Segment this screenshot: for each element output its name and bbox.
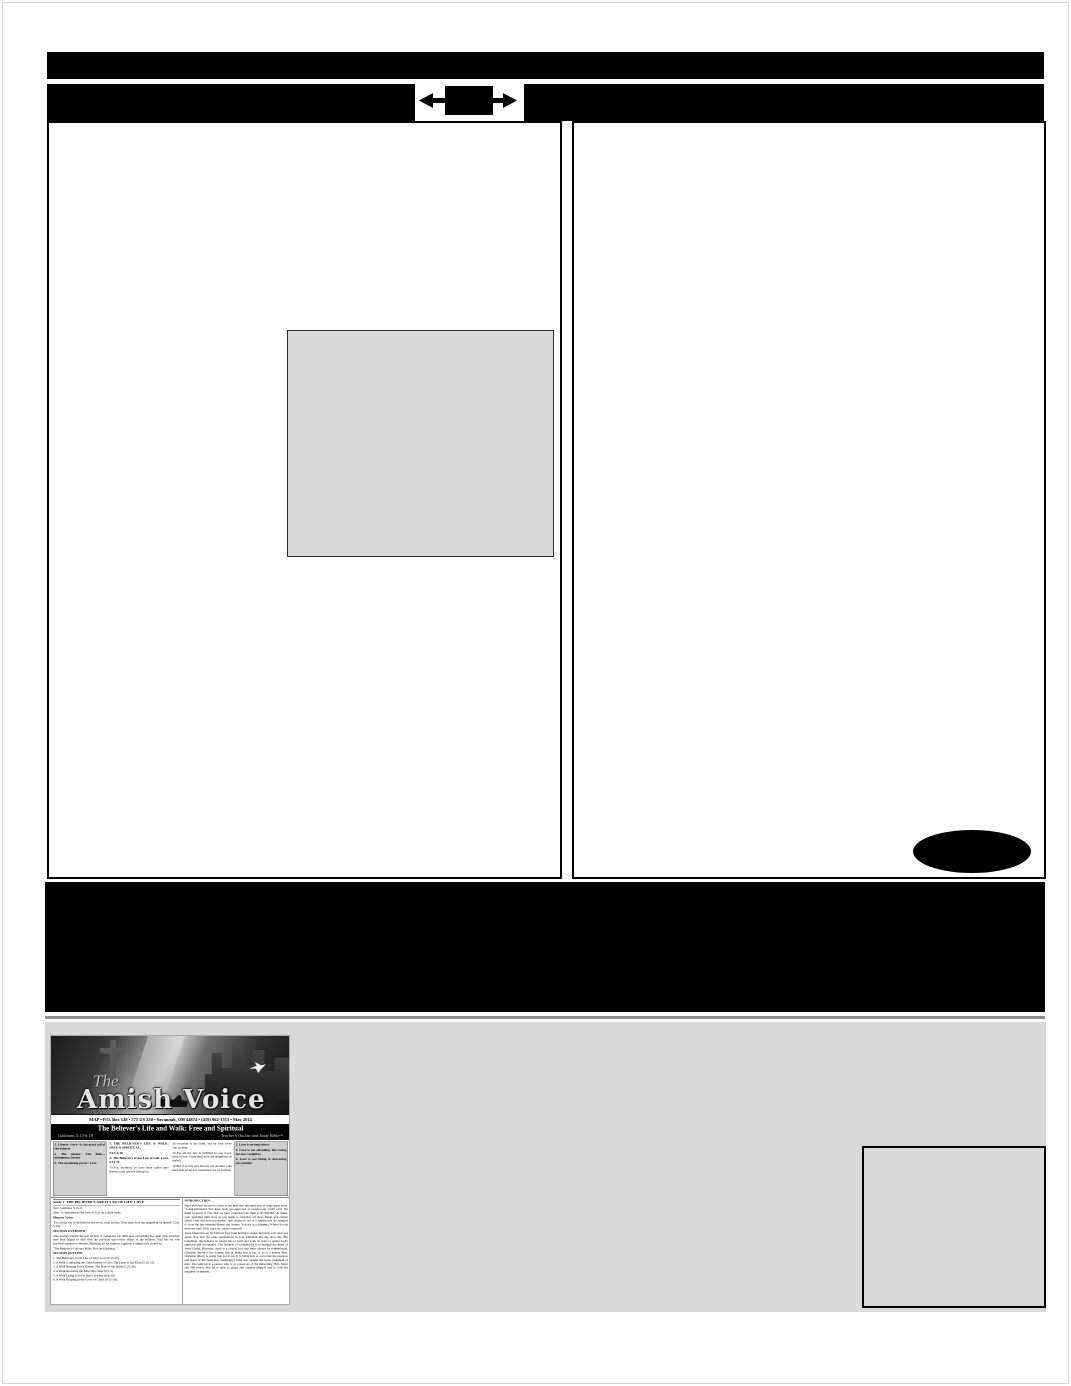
outline-item: a. The danger: The flesh—indulgence, lic…	[55, 1152, 106, 1160]
document-page: The Amish Voice MAP • P.O. Box 128 • 575…	[0, 0, 1071, 1386]
introduction-paragraph: Have you ever received a letter in the m…	[184, 1204, 288, 1231]
footer-redaction-band	[45, 882, 1045, 1012]
section-heading: 5. THE BELIEVER'S LIFE & WALK: FREE & SP…	[109, 1142, 169, 1150]
newsletter-page: The Amish Voice MAP • P.O. Box 128 • 575…	[51, 1036, 290, 1305]
outline-list-item: 4. A Walk Restoring the Man Who Slips (6…	[53, 1269, 180, 1273]
outline-item: 1. Liberty—love—is the great call of the…	[55, 1143, 106, 1151]
section-outline-list: 1. The Believer's Great Law of Life: Lov…	[53, 1256, 180, 1282]
outline-item: 2. Love is serving others	[236, 1143, 287, 1147]
outline-list-item: 5. A Walk Doing Good to One's Teacher (6…	[53, 1274, 180, 1278]
study-aim: Aim: To demonstrate the love of God on a…	[53, 1211, 180, 1215]
newsletter-source: – Teacher's Outline and Study Bible™	[218, 1133, 283, 1138]
newsletter-body: Study 1: THE BELIEVER'S GREAT LAW OF LIF…	[51, 1198, 290, 1304]
header-bar-right	[524, 84, 1044, 121]
outline-list-item: 2. A Walk Combating the Great Enemy of L…	[53, 1261, 180, 1265]
newsletter-title: The Believer's Life and Walk: Free and S…	[51, 1125, 290, 1133]
newsletter-title-band: The Believer's Life and Walk: Free and S…	[51, 1125, 290, 1140]
outline-list-item: 3. A Walk Bearing God's Nature: The Frui…	[53, 1265, 180, 1269]
masthead-info-line: MAP • P.O. Box 128 • 575 US 250 • Savann…	[51, 1114, 290, 1125]
section-outline-label: SECTION OUTLINE:	[53, 1252, 180, 1256]
divider-rule	[45, 1016, 1045, 1019]
placeholder-image-box	[287, 330, 554, 557]
horizontal-resize-handle[interactable]	[415, 84, 521, 121]
outline-item: 4. Love is not biting & devouring one an…	[236, 1158, 287, 1166]
section-overview-quote: "The Believer's Life and Walk: Free and …	[53, 1247, 180, 1251]
section-overview-text: This passage begins the last section of …	[53, 1234, 180, 1246]
verse-text: 14 For all the law is fulfilled in one w…	[172, 1151, 232, 1163]
newsletter-outline-columns: 1. Liberty—love—is the great call of the…	[51, 1140, 290, 1198]
section-ref: 5:13–6:18	[109, 1151, 169, 1155]
introduction-paragraph: Jesus Christ has set the believer free f…	[184, 1232, 288, 1274]
outline-note-left: 1. Liberty—love—is the great call of the…	[53, 1142, 107, 1197]
introduction-label: INTRODUCTION:	[184, 1199, 288, 1203]
newsletter-thumbnail: The Amish Voice MAP • P.O. Box 128 • 575…	[50, 1035, 290, 1305]
subsection-heading: A. The Believer's Great Law of Life: Lov…	[109, 1157, 169, 1165]
outline-note-right: 2. Love is serving others 3. Love is not…	[234, 1142, 288, 1197]
memory-verse: "For all the law is fulfilled in one wor…	[53, 1221, 180, 1229]
outline-list-item: 6. A Walk Reaping in the Cross of Christ…	[53, 1278, 180, 1282]
black-ellipse-callout	[913, 830, 1031, 873]
bottom-right-outline-box	[862, 1146, 1046, 1308]
verse-text: an occasion to the flesh, but by love se…	[172, 1142, 232, 1150]
study-text-ref: Text: Galatians 5:13-15	[53, 1206, 180, 1210]
verse-text: 13 For, brethren, ye have been called un…	[109, 1166, 169, 1174]
masthead-logo: Amish Voice	[77, 1084, 266, 1114]
newsletter-masthead: The Amish Voice	[51, 1036, 290, 1114]
verse-text: 15 But if ye bite and devour one another…	[172, 1164, 232, 1172]
outline-list-item: 1. The Believer's Great Law of Life: Lov…	[53, 1256, 180, 1260]
study-column: Study 1: THE BELIEVER'S GREAT LAW OF LIF…	[51, 1198, 182, 1304]
outline-item: 3. Love is not offending, but caring for…	[236, 1148, 287, 1156]
newsletter-scripture-ref: Galatians 5:13-6:18	[58, 1133, 93, 1138]
right-column-panel	[572, 121, 1046, 879]
left-right-arrows-icon	[415, 84, 521, 121]
header-bar-left	[47, 84, 415, 121]
scripture-column-2: an occasion to the flesh, but by love se…	[171, 1142, 233, 1197]
top-redaction-bar	[47, 52, 1044, 79]
section-overview-label: SECTION OVERVIEW:	[53, 1229, 180, 1233]
outline-item: b. The sustaining power: Love	[55, 1162, 106, 1166]
scripture-column-1: 5. THE BELIEVER'S LIFE & WALK: FREE & SP…	[108, 1142, 170, 1197]
memory-verse-label: Memory Verse:	[53, 1216, 180, 1220]
cross-icon	[100, 1048, 126, 1054]
study-title: Study 1: THE BELIEVER'S GREAT LAW OF LIF…	[53, 1199, 180, 1205]
introduction-column: INTRODUCTION: Have you ever received a l…	[182, 1198, 290, 1304]
